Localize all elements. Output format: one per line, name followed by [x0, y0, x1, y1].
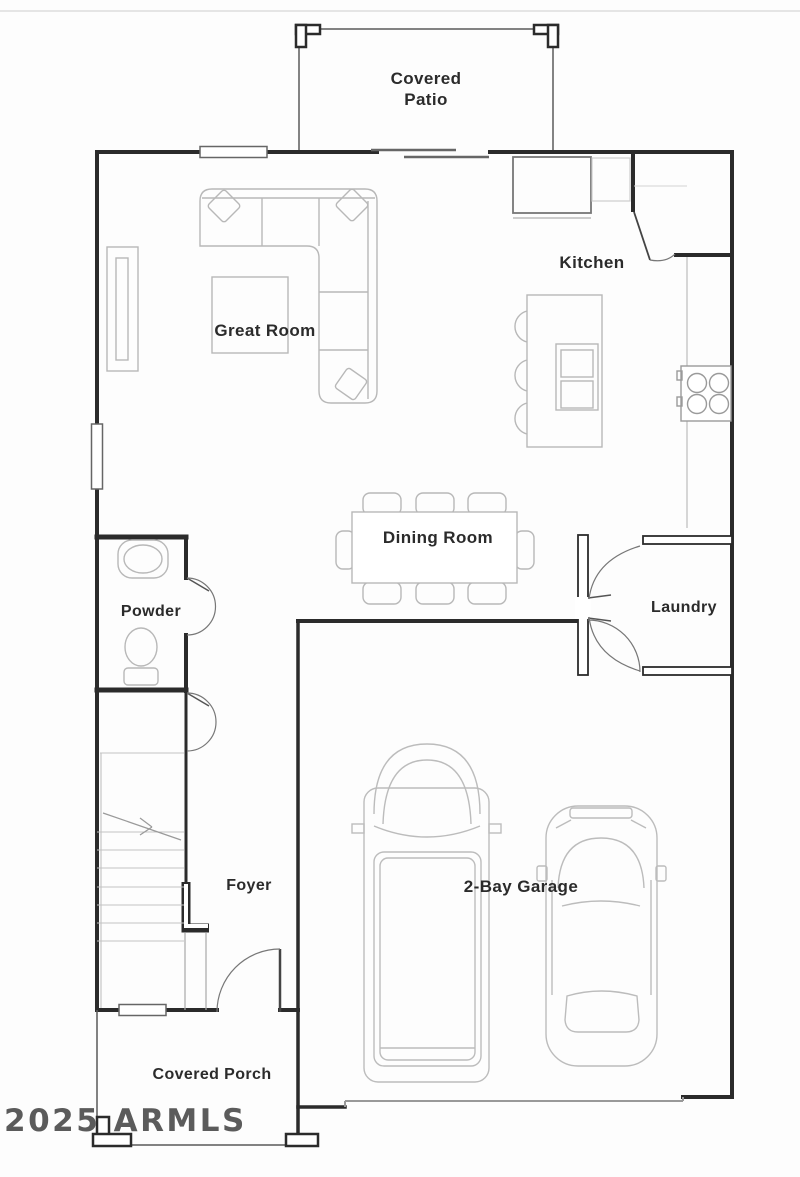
bar-stool: [515, 403, 527, 434]
dining-table: [352, 512, 517, 583]
sofa-pillow: [335, 188, 369, 222]
laundry-door-opening: [575, 597, 591, 619]
laundry-door-leaf-top: [588, 595, 611, 598]
front-door-arc: [217, 949, 280, 1012]
car-hood-strip: [570, 808, 632, 818]
dining-chair: [468, 582, 506, 604]
truck-cowl: [374, 826, 480, 837]
truck: [352, 744, 501, 1082]
patio-post-right-leg: [548, 25, 558, 47]
tv: [116, 258, 128, 360]
truck-windshield: [383, 760, 471, 824]
kitchen-label: Kitchen: [559, 253, 624, 272]
laundry-door-arc-top: [589, 546, 640, 599]
exterior-walls: [97, 152, 732, 1097]
covered-patio-label-line2: Patio: [404, 90, 448, 109]
garage-door: [345, 1097, 683, 1107]
car-roof-line: [562, 901, 640, 906]
refrigerator: [513, 157, 591, 213]
toilet-tank: [124, 668, 158, 685]
floor-plan-page: Covered Patio Kitchen Great Room Dining …: [0, 0, 800, 1177]
toilet-bowl: [125, 628, 157, 666]
armls-watermark: 2025 ARMLS: [4, 1103, 247, 1139]
dining-chair: [416, 582, 454, 604]
pantry-door-arc: [650, 254, 675, 261]
laundry-label: Laundry: [651, 599, 717, 616]
coffee-table: [212, 277, 288, 353]
covered-porch-label: Covered Porch: [152, 1066, 271, 1083]
car-headlight-left: [556, 820, 571, 828]
dining-room-label: Dining Room: [383, 528, 493, 547]
interior-walls: [97, 152, 732, 1136]
great-room-label: Great Room: [214, 321, 315, 340]
foyer-label: Foyer: [226, 877, 272, 894]
patio-post-left-leg: [296, 25, 306, 47]
truck-cab-arch: [374, 744, 480, 814]
bar-stool: [515, 311, 527, 342]
laundry-bottom-wall: [643, 667, 732, 675]
understair-lines: [185, 933, 206, 1010]
pantry-door-leaf: [634, 212, 650, 260]
dining-chair: [363, 582, 401, 604]
dining-chair: [515, 531, 534, 569]
foyer-wall-return: [186, 882, 209, 928]
laundry-top-wall: [643, 536, 732, 544]
garage-label: 2-Bay Garage: [464, 877, 578, 896]
photo-edge-line: [0, 10, 800, 12]
dining-furniture: [336, 493, 534, 604]
porch-post-right: [286, 1134, 318, 1146]
tv-console: [107, 247, 138, 371]
kitchen-fixtures: [513, 157, 731, 528]
car: [537, 806, 666, 1066]
stair-direction-arrow: [103, 813, 181, 840]
porch-window: [119, 1005, 166, 1016]
great-room-window: [200, 147, 267, 158]
powder-label: Powder: [121, 603, 181, 620]
sofa-pillow: [207, 189, 241, 223]
kitchen-island: [515, 295, 602, 447]
left-wall-window: [92, 424, 103, 489]
sliding-door: [371, 150, 489, 157]
car-rear-window: [565, 991, 639, 1032]
great-room-furniture: [107, 188, 377, 403]
cabinet: [592, 158, 630, 201]
stairs: [97, 753, 184, 1008]
car-headlight-right: [631, 820, 646, 828]
bar-stool: [515, 360, 527, 391]
floor-plan-svg: Covered Patio Kitchen Great Room Dining …: [0, 0, 800, 1177]
garage-entry-door-arc: [588, 620, 640, 672]
truck-mirror-right: [489, 824, 501, 833]
truck-mirror-left: [352, 824, 364, 833]
covered-patio-label-line1: Covered: [391, 69, 462, 88]
cooktop: [677, 366, 731, 421]
sofa-pillow: [334, 367, 367, 400]
